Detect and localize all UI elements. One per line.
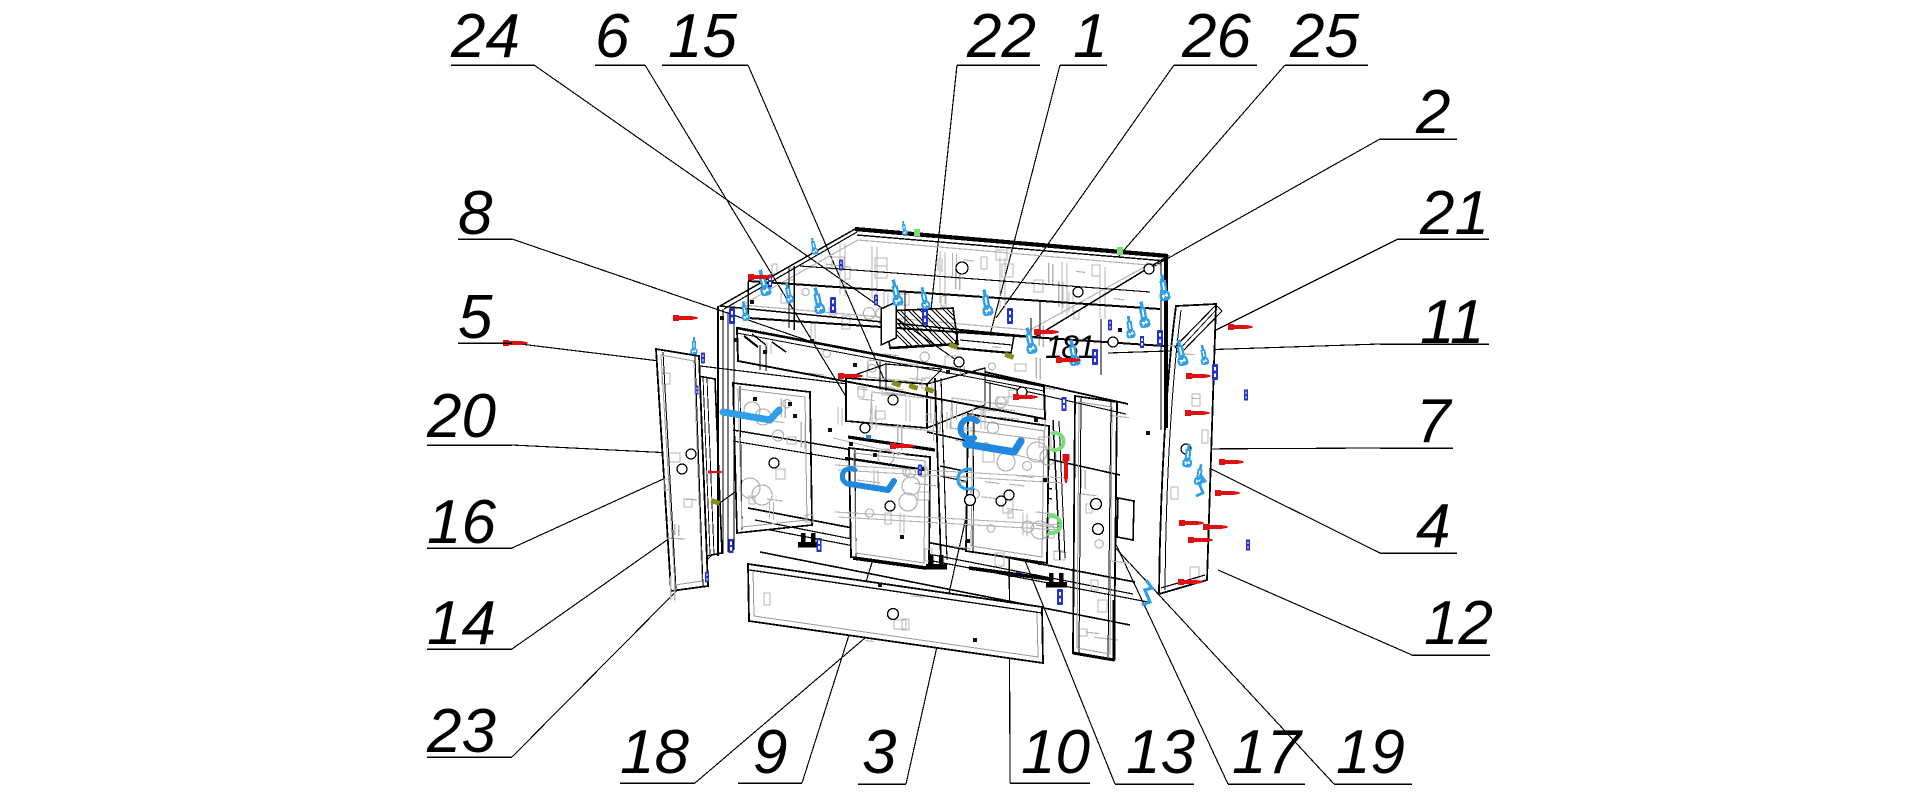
svg-text:7: 7 (1416, 387, 1453, 456)
svg-text:4: 4 (1416, 492, 1450, 561)
svg-text:21: 21 (1419, 179, 1489, 248)
svg-text:10: 10 (1021, 718, 1090, 787)
svg-text:20: 20 (426, 382, 496, 451)
svg-text:2: 2 (1415, 78, 1450, 147)
svg-text:13: 13 (1126, 718, 1195, 787)
svg-text:22: 22 (966, 2, 1036, 71)
svg-text:26: 26 (1181, 2, 1251, 71)
svg-text:9: 9 (753, 718, 787, 787)
svg-text:17: 17 (1232, 718, 1303, 787)
svg-text:11: 11 (1420, 288, 1484, 357)
svg-text:8: 8 (458, 179, 493, 248)
svg-text:25: 25 (1289, 2, 1359, 71)
svg-text:23: 23 (426, 697, 496, 766)
svg-text:24: 24 (450, 2, 520, 71)
svg-text:12: 12 (1424, 589, 1493, 658)
svg-text:14: 14 (427, 589, 496, 658)
svg-text:15: 15 (668, 2, 737, 71)
svg-text:3: 3 (862, 718, 896, 787)
svg-text:1: 1 (1073, 2, 1107, 71)
svg-text:16: 16 (427, 488, 496, 557)
svg-text:18: 18 (620, 718, 689, 787)
svg-text:19: 19 (1336, 718, 1405, 787)
svg-text:6: 6 (595, 2, 630, 71)
svg-text:5: 5 (458, 283, 493, 352)
